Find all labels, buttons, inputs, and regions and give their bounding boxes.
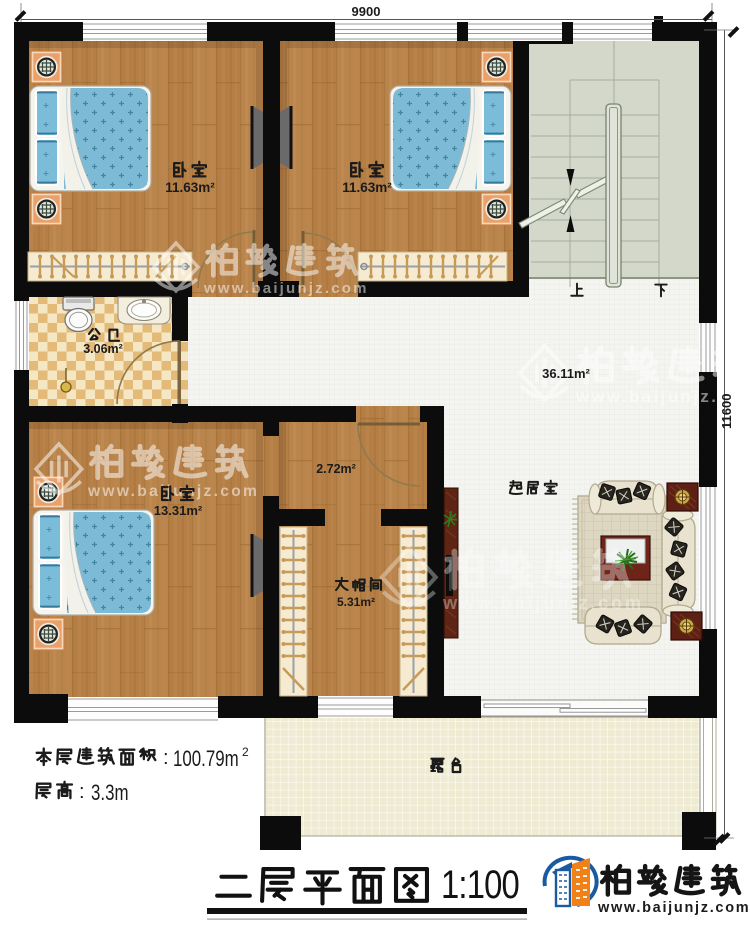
svg-text:11.63m²: 11.63m² [165,180,215,195]
svg-text:3.3m: 3.3m [91,781,128,806]
svg-text:3.06m²: 3.06m² [83,342,123,356]
svg-text:9900: 9900 [352,4,381,19]
svg-text:www.baijunjz.com: www.baijunjz.com [203,280,369,297]
svg-text:www.baijunjz.com: www.baijunjz.com [442,592,644,613]
svg-text:11.63m²: 11.63m² [342,180,392,195]
svg-text:11600: 11600 [719,394,734,429]
svg-text:2.72m²: 2.72m² [316,462,356,476]
svg-text:13.31m²: 13.31m² [154,503,203,518]
svg-text:2: 2 [242,745,249,759]
svg-text:www.baijunjz.com: www.baijunjz.com [87,483,259,500]
svg-text::: : [163,747,169,769]
svg-text::: : [79,781,85,803]
svg-text:www.baijunjz.com: www.baijunjz.com [597,900,750,916]
svg-text:100.79m: 100.79m [173,747,239,772]
svg-text:36.11m²: 36.11m² [542,366,590,381]
svg-text:5.31m²: 5.31m² [337,595,375,609]
svg-text:1:100: 1:100 [441,862,519,907]
